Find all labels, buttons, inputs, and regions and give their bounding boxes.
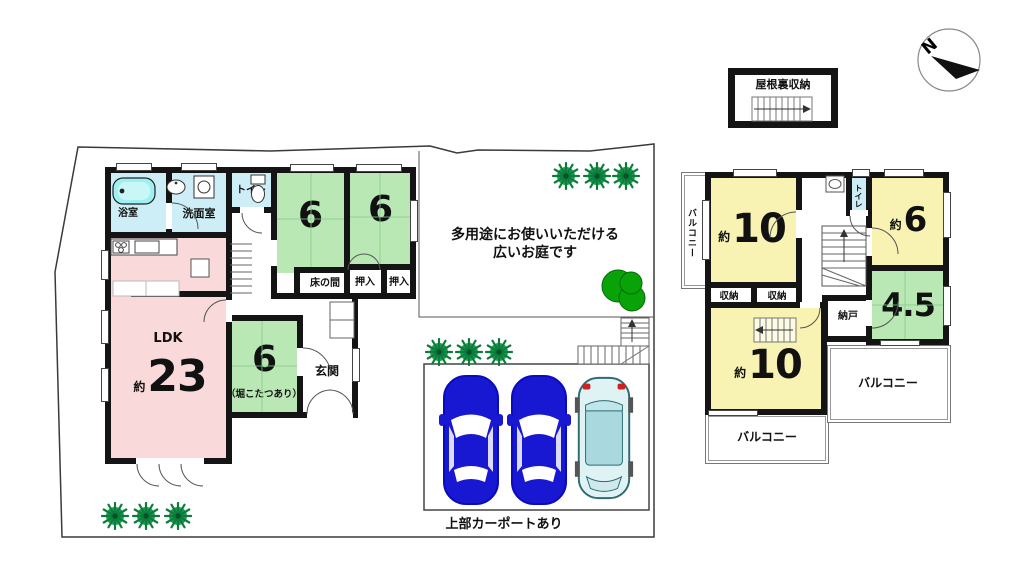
ldk-room (105, 232, 232, 464)
window (884, 169, 924, 177)
closet-2f-label: 収納 (756, 292, 798, 302)
attic-label: 屋根裏収納 (728, 79, 838, 91)
attic-storage-box (728, 68, 838, 128)
ldk-label: LDK (138, 332, 198, 346)
bush-icon (133, 503, 159, 529)
balcony-left-label: バルコニー (685, 185, 698, 280)
tatami-c-size: 6 (234, 340, 294, 380)
closet-label: 押入 (346, 277, 384, 288)
closet-label: 押入 (380, 277, 418, 288)
bush-icon (426, 339, 452, 365)
bush-icon (165, 503, 191, 529)
tree-icon (602, 270, 645, 311)
car-icon (439, 376, 503, 504)
compass-north-label: N (918, 34, 942, 58)
bush-icon (102, 503, 128, 529)
bath-label: 浴室 (98, 208, 158, 219)
window (410, 200, 418, 242)
tatami-b-size: 6 (350, 190, 410, 230)
car-icon (507, 376, 571, 504)
tatami-a-size: 6 (280, 196, 340, 236)
window (181, 163, 217, 171)
toilet-1f-label: トイレ (221, 185, 281, 196)
room-nw-size: 約 10 (710, 202, 794, 252)
storeroom-label: 納戸 (824, 311, 872, 322)
room-sw-size: 約 10 (726, 338, 810, 388)
window (116, 163, 152, 171)
room-se-size: 4.5 (868, 288, 948, 323)
toilet-2f-label: トイレ (853, 177, 864, 215)
carport-caption: 上部カーポートあり (414, 513, 594, 532)
car-icon (575, 378, 633, 498)
stairs-2f (822, 226, 866, 286)
bush-icon (456, 339, 482, 365)
washroom-label: 洗面室 (169, 208, 229, 220)
entrance-label: 玄関 (297, 365, 357, 378)
closet-2f-label: 収納 (708, 292, 750, 302)
kotatsu-note: （堀こたつあり） (204, 390, 324, 400)
window (733, 169, 777, 177)
compass-icon: N (918, 29, 980, 91)
window (101, 368, 109, 402)
shoe-closet-icon (330, 302, 354, 338)
window (101, 310, 109, 344)
balcony-right-label: バルコニー (827, 377, 949, 390)
washbasin-2f-icon (826, 176, 844, 192)
window (101, 250, 109, 280)
room-ne-size: 約 6 (876, 192, 940, 240)
floorplan-canvas: 浴室 洗面室 トイレ 6 床の間 6 押入 押入 LDK 約 23 6 （堀こた… (0, 0, 1024, 561)
window (702, 200, 710, 260)
window (290, 164, 334, 172)
bush-icon (486, 339, 512, 365)
alcove-label: 床の間 (299, 278, 351, 289)
approx-label: 約 (133, 378, 145, 402)
bush-icon (553, 163, 579, 189)
bush-icon (584, 163, 610, 189)
exterior-steps (578, 318, 649, 364)
garden-caption: 多用途にお使いいただける 広いお庭です (419, 226, 651, 262)
balcony-bottom-label: バルコニー (707, 431, 827, 444)
window (356, 164, 402, 172)
carport-outline (424, 364, 649, 510)
window (852, 169, 870, 177)
window (943, 192, 951, 238)
washroom (166, 167, 232, 238)
window (880, 340, 920, 346)
bathroom (105, 167, 172, 238)
stairs-1f (230, 244, 252, 293)
bush-icon (613, 163, 639, 189)
window (708, 410, 758, 416)
